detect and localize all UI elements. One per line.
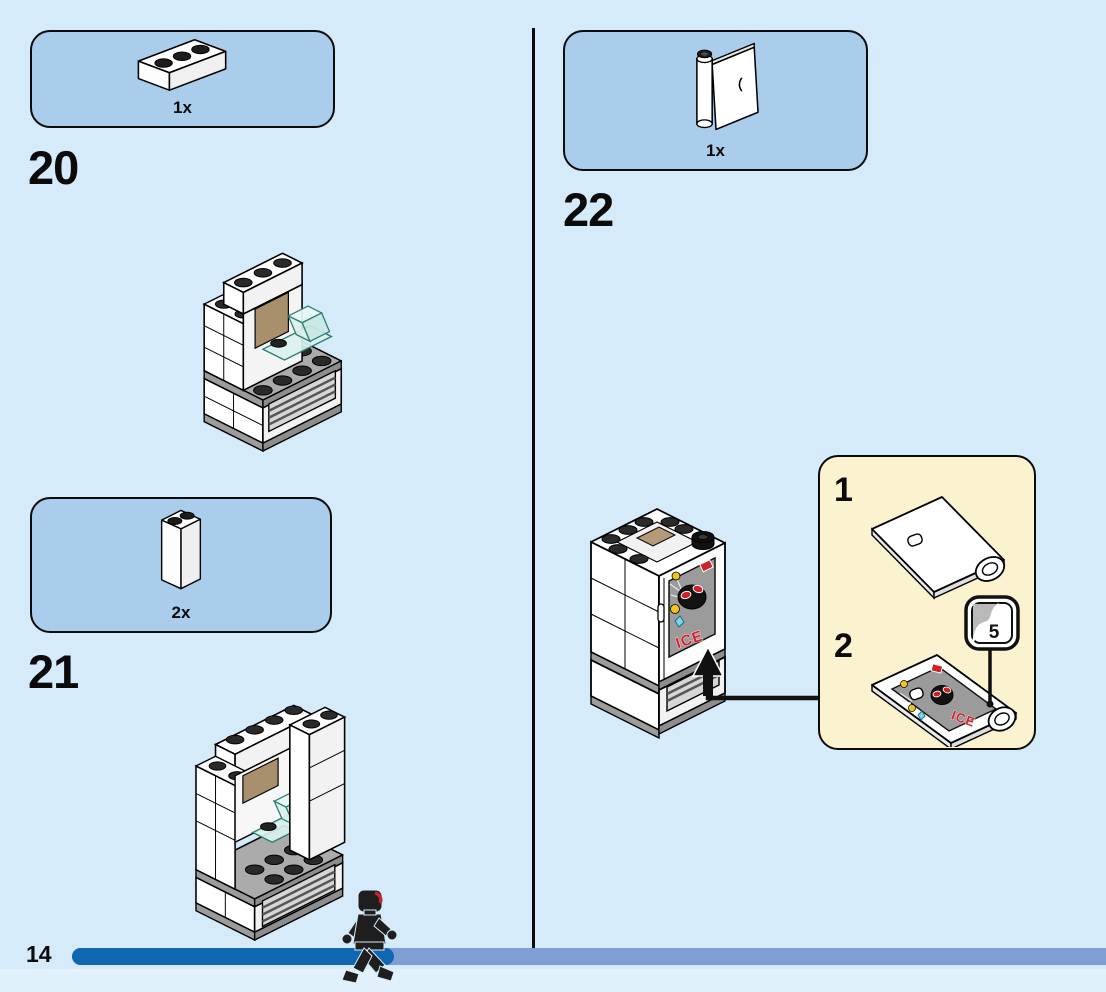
bulb-icon bbox=[671, 605, 680, 614]
column-divider bbox=[532, 28, 535, 948]
parts-box-step22: 1x bbox=[563, 30, 868, 171]
step20-assembly-image bbox=[165, 212, 400, 457]
part-door-white-icon bbox=[656, 32, 776, 139]
apply-sticker-arrow bbox=[688, 644, 823, 706]
footer-strip bbox=[0, 969, 1106, 992]
door-with-sticker-image: ICE bbox=[872, 655, 1020, 747]
sticker-callout: 1 2 bbox=[818, 455, 1036, 750]
progress-bar bbox=[72, 948, 1106, 965]
part-count-label: 2x bbox=[172, 603, 191, 623]
black-round-brick bbox=[692, 532, 714, 550]
part-brick-1x3-white-icon bbox=[123, 32, 243, 96]
door-handle bbox=[658, 604, 664, 622]
callout-substep-2: 2 bbox=[834, 627, 853, 665]
step22-assembly-image: ICE bbox=[563, 478, 768, 748]
part-count-label: 1x bbox=[706, 141, 725, 161]
parts-box-step20: 1x bbox=[30, 30, 335, 128]
callout-substep-1: 1 bbox=[834, 471, 853, 509]
parts-box-step21: 2x bbox=[30, 497, 332, 633]
step-number-21: 21 bbox=[28, 648, 78, 695]
part-count-label: 1x bbox=[173, 98, 192, 118]
minifigure-progress-marker bbox=[336, 884, 400, 992]
sticker-callout-content: 1 2 bbox=[820, 457, 1033, 747]
page-number: 14 bbox=[26, 941, 52, 968]
smiley-icon bbox=[672, 572, 680, 580]
part-brick-1x2x2-white-icon bbox=[140, 499, 222, 601]
sticker-number: 5 bbox=[989, 622, 1000, 643]
sticker-5-icon: 5 bbox=[966, 597, 1018, 649]
step-number-22: 22 bbox=[563, 186, 613, 233]
door-blank-image bbox=[872, 497, 1008, 598]
instruction-page: 1x 20 bbox=[0, 0, 1106, 992]
step-number-20: 20 bbox=[28, 144, 78, 191]
